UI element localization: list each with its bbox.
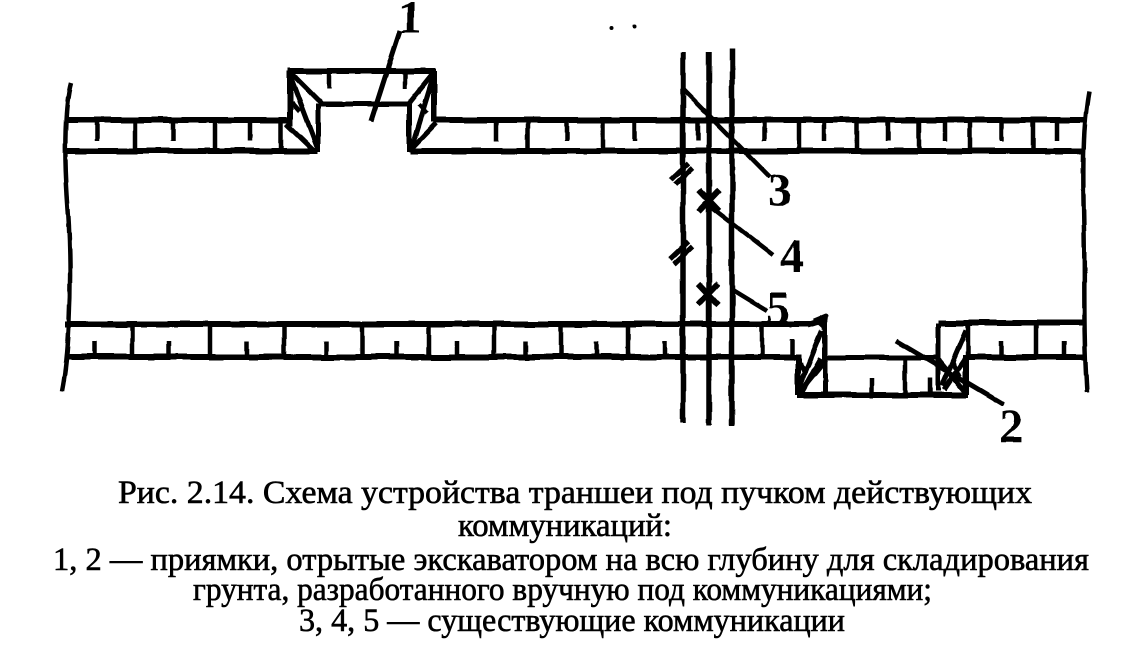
svg-text:Рис. 2.14. Схема устройства тр: Рис. 2.14. Схема устройства траншеи под …	[118, 475, 1033, 511]
svg-text:2: 2	[999, 401, 1023, 454]
svg-text:коммуникаций:: коммуникаций:	[458, 508, 672, 544]
svg-text:3: 3	[768, 164, 792, 217]
svg-text:3, 4, 5 — существующие коммуни: 3, 4, 5 — существующие коммуникации	[299, 603, 845, 639]
svg-text:1: 1	[398, 0, 422, 44]
svg-text:4: 4	[780, 230, 804, 283]
svg-text:5: 5	[766, 282, 790, 335]
